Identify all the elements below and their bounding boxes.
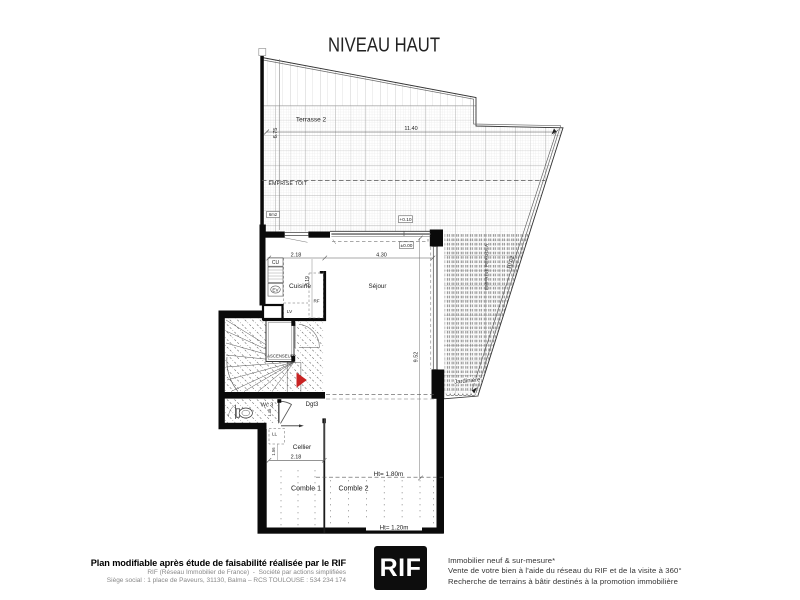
svg-text:Ht= 1.80m: Ht= 1.80m xyxy=(374,471,404,478)
svg-text:Terrasse 2: Terrasse 2 xyxy=(296,117,327,124)
svg-text:±0.00: ±0.00 xyxy=(401,243,413,249)
svg-text:2.18: 2.18 xyxy=(291,455,302,461)
svg-text:6.75: 6.75 xyxy=(273,128,279,139)
svg-text:EMPRISE PERGOLA: EMPRISE PERGOLA xyxy=(484,244,489,290)
svg-text:Cellier: Cellier xyxy=(293,444,312,451)
svg-text:NIVEAU HAUT: NIVEAU HAUT xyxy=(328,35,440,57)
svg-text:+0.10: +0.10 xyxy=(399,217,411,223)
svg-text:4.30: 4.30 xyxy=(376,252,387,258)
svg-text:Wc 3: Wc 3 xyxy=(261,403,274,409)
svg-text:2.18: 2.18 xyxy=(291,252,302,258)
svg-text:1.08: 1.08 xyxy=(267,408,272,417)
svg-text:RF: RF xyxy=(313,299,319,304)
svg-text:Ht= 1.20m: Ht= 1.20m xyxy=(380,525,409,532)
svg-text:ASCENSEUR: ASCENSEUR xyxy=(267,354,294,359)
svg-text:EMPRISE TOIT: EMPRISE TOIT xyxy=(269,181,308,187)
svg-text:Dgt3: Dgt3 xyxy=(306,402,319,408)
svg-text:3.19: 3.19 xyxy=(305,276,311,286)
svg-text:CU: CU xyxy=(272,260,280,266)
svg-text:LV: LV xyxy=(287,309,293,314)
svg-text:1.56: 1.56 xyxy=(271,447,276,456)
svg-text:Séjour: Séjour xyxy=(369,283,387,290)
svg-text:6m2: 6m2 xyxy=(269,212,278,217)
svg-text:Comble 2: Comble 2 xyxy=(339,486,369,493)
svg-text:9.52: 9.52 xyxy=(414,352,420,363)
svg-text:LL: LL xyxy=(272,432,278,437)
svg-text:11.40: 11.40 xyxy=(404,126,417,132)
svg-text:EV: EV xyxy=(272,288,279,293)
svg-text:Comble 1: Comble 1 xyxy=(291,486,321,493)
